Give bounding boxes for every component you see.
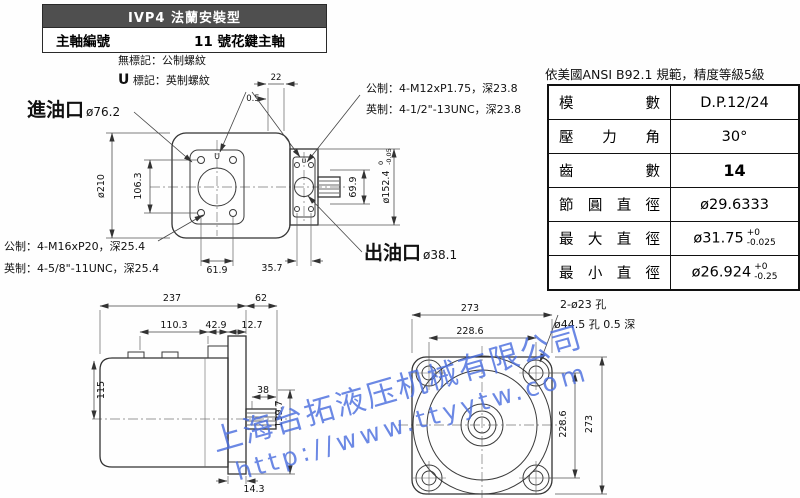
spec-value: ø26.924+0-0.25 xyxy=(671,256,799,291)
spec-table-caption: 依美國ANSI B92.1 規範，精度等級5級 xyxy=(545,64,764,83)
note-left-inch: 英制：4-5/8"-11UNC，深25.4 xyxy=(4,261,159,275)
dim-seg-a: 110.3 xyxy=(160,320,187,331)
tol-minus: -0.025 xyxy=(747,239,776,248)
outlet-label-text: 出油口 xyxy=(364,241,421,264)
spindle-value: 11 號花鍵主軸 xyxy=(194,30,285,50)
outlet-port-label: 出油口ø38.1 xyxy=(364,241,457,264)
dim-height: 115 xyxy=(96,381,107,399)
dim-pilot-dia: ø152.4 xyxy=(381,170,392,203)
dim-front-h: 273 xyxy=(584,415,595,433)
top-boss xyxy=(208,346,228,358)
u-mark-prefix: U xyxy=(118,72,129,88)
title-block: IVP4 法蘭安裝型 主軸編號 11 號花鍵主軸 xyxy=(42,4,327,53)
spec-value: D.P.12/24 xyxy=(671,85,799,120)
spec-value-main: ø31.75 xyxy=(693,231,743,247)
dim-seg-c: 12.7 xyxy=(241,320,262,331)
dim-boss-w: 22 xyxy=(271,73,282,83)
inlet-label-text: 進油口 xyxy=(27,99,84,121)
dim-rear-v: 69.9 xyxy=(348,176,359,197)
inlet-port-label: 進油口ø76.2 xyxy=(27,99,120,121)
dim-rear-h: 35.7 xyxy=(261,263,282,274)
tolerance-stack: +0-0.25 xyxy=(754,263,777,282)
dim-rear-len: 62 xyxy=(255,293,267,304)
spline-spec-table: 模數 D.P.12/24 壓力角 30° 齒數 14 節圓直徑 ø29.6333… xyxy=(547,84,800,291)
dim-foot: 14.3 xyxy=(243,484,264,495)
table-row: 壓力角 30° xyxy=(548,120,799,154)
dim-spline-len: 38 xyxy=(257,385,269,396)
spec-label: 模數 xyxy=(548,85,671,120)
table-row: 節圓直徑 ø29.6333 xyxy=(548,188,799,222)
note-top-metric: 公制：4-M12xP1.75，深23.8 xyxy=(366,82,518,95)
spec-label: 節圓直徑 xyxy=(548,188,671,222)
table-row: 最大直徑 ø31.75+0-0.025 xyxy=(548,222,799,256)
u-mark-rest: 標記：英制螺紋 xyxy=(129,73,210,87)
spec-label: 壓力角 xyxy=(548,120,671,154)
dim-face-h: 61.9 xyxy=(206,265,227,276)
tol-minus: -0.25 xyxy=(754,273,777,282)
dim-front-bolt-w: 228.6 xyxy=(456,326,483,337)
note-u-mark: U 標記：英制螺紋 xyxy=(118,72,210,88)
dim-face-v: 106.3 xyxy=(133,172,144,199)
dim-front-w: 273 xyxy=(461,303,479,314)
note-left-metric: 公制：4-M16xP20，深25.4 xyxy=(4,240,145,253)
spec-value-main: ø26.924 xyxy=(692,265,752,281)
model-title: IVP4 法蘭安裝型 xyxy=(43,5,326,27)
dim-pilot-tol-top: 0 xyxy=(377,161,385,165)
spec-value: ø29.6333 xyxy=(671,188,799,222)
spec-value: ø31.75+0-0.025 xyxy=(671,222,799,256)
table-row: 最小直徑 ø26.924+0-0.25 xyxy=(548,256,799,291)
note-no-mark: 無標記：公制螺紋 xyxy=(118,53,206,67)
table-row: 模數 D.P.12/24 xyxy=(548,85,799,120)
dim-front-bolt-h: 228.6 xyxy=(558,410,569,437)
spec-label: 最大直徑 xyxy=(548,222,671,256)
dim-seg-b: 42.9 xyxy=(205,320,226,331)
dim-overall: 237 xyxy=(163,293,181,304)
note-front-holes: 2-ø23 孔 xyxy=(560,298,606,311)
u-mark-inlet: U xyxy=(214,152,220,161)
dim-outer-dia: ø210 xyxy=(96,174,107,198)
dim-pilot-tol-bot: -0.05 xyxy=(385,148,393,165)
side-body-outline xyxy=(100,358,228,467)
spec-value: 30° xyxy=(671,120,799,154)
table-row: 齒數 14 xyxy=(548,154,799,188)
spec-label: 齒數 xyxy=(548,154,671,188)
spec-label: 最小直徑 xyxy=(548,256,671,291)
spec-value: 14 xyxy=(671,154,799,188)
spindle-label: 主軸編號 xyxy=(56,30,110,50)
inlet-dia-text: ø76.2 xyxy=(86,105,120,119)
tolerance-stack: +0-0.025 xyxy=(747,229,776,248)
u-mark-outlet: U xyxy=(302,157,307,165)
note-top-inch: 英制：4-1/2"-13UNC，深23.8 xyxy=(366,102,521,116)
spindle-row: 主軸編號 11 號花鍵主軸 xyxy=(43,27,326,52)
outlet-dia-text: ø38.1 xyxy=(423,248,457,262)
